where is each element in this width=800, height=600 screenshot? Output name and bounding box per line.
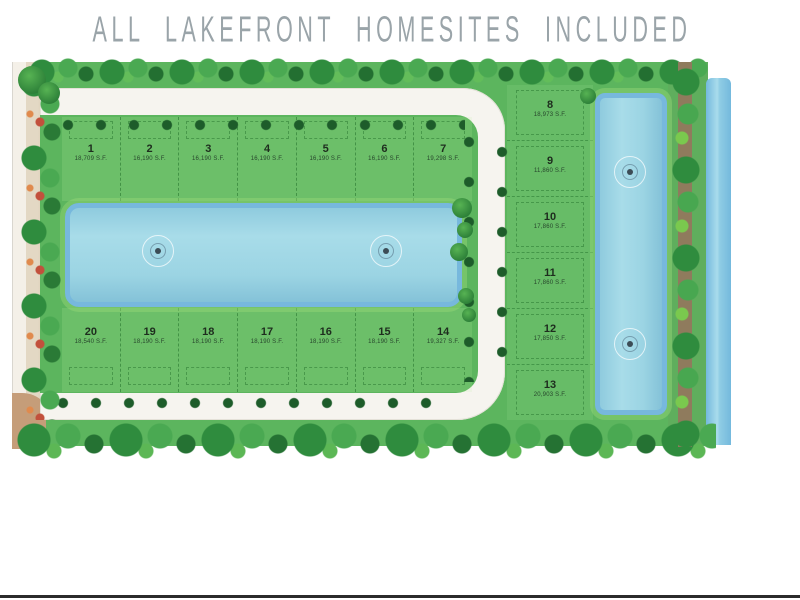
tree-icon bbox=[458, 288, 474, 304]
shrub-line-west bbox=[18, 70, 64, 420]
lot-parcel-13: 1320,903 S.F. bbox=[507, 364, 593, 420]
tree-icon bbox=[38, 82, 60, 104]
lot-parcel-18: 1818,190 S.F. bbox=[178, 308, 237, 392]
lot-area: 16,190 S.F. bbox=[309, 155, 342, 163]
street-tree-dots-east-outer bbox=[497, 142, 508, 380]
lot-area: 19,327 S.F. bbox=[427, 338, 460, 346]
lot-number: 17 bbox=[261, 326, 273, 338]
central-lake bbox=[65, 203, 462, 307]
fountain-icon bbox=[614, 328, 646, 360]
lot-number: 18 bbox=[202, 326, 214, 338]
lot-number: 3 bbox=[205, 143, 211, 155]
building-envelope-line bbox=[516, 90, 584, 135]
lot-area: 18,709 S.F. bbox=[75, 155, 108, 163]
lot-area: 16,190 S.F. bbox=[133, 155, 166, 163]
lot-parcel-19: 1918,190 S.F. bbox=[120, 308, 179, 392]
building-envelope-line bbox=[245, 367, 289, 385]
fountain-icon bbox=[142, 235, 174, 267]
fountain-icon bbox=[370, 235, 402, 267]
lot-parcel-12: 1217,850 S.F. bbox=[507, 308, 593, 364]
lot-parcel-15: 1518,190 S.F. bbox=[355, 308, 414, 392]
tree-icon bbox=[462, 308, 476, 322]
lot-area: 16,190 S.F. bbox=[192, 155, 225, 163]
lot-number: 1 bbox=[88, 143, 94, 155]
building-envelope-line bbox=[69, 367, 113, 385]
lot-area: 18,190 S.F. bbox=[368, 338, 401, 346]
lot-parcel-20: 2018,540 S.F. bbox=[62, 308, 120, 392]
building-envelope-line bbox=[186, 367, 230, 385]
lot-number: 14 bbox=[437, 326, 449, 338]
lot-number: 20 bbox=[85, 326, 97, 338]
street-tree-dots-north bbox=[60, 119, 465, 131]
lot-parcel-10: 1017,860 S.F. bbox=[507, 196, 593, 252]
tree-icon bbox=[457, 222, 473, 238]
page-title: ALL LAKEFRONT HOMESITES INCLUDED bbox=[39, 10, 745, 52]
lot-area: 16,190 S.F. bbox=[251, 155, 284, 163]
east-lake bbox=[595, 93, 667, 415]
lot-parcel-9: 911,860 S.F. bbox=[507, 140, 593, 196]
lot-area: 18,190 S.F. bbox=[309, 338, 342, 346]
lot-area: 18,540 S.F. bbox=[75, 338, 108, 346]
tree-icon bbox=[580, 88, 596, 104]
lot-number: 4 bbox=[264, 143, 270, 155]
lot-number: 19 bbox=[143, 326, 155, 338]
building-envelope-line bbox=[128, 367, 172, 385]
lot-number: 5 bbox=[323, 143, 329, 155]
lot-area: 18,190 S.F. bbox=[192, 338, 225, 346]
lot-number: 15 bbox=[378, 326, 390, 338]
lot-parcel-16: 1618,190 S.F. bbox=[296, 308, 355, 392]
street-tree-dots-south bbox=[55, 397, 443, 409]
lot-row-south: 2018,540 S.F. 1918,190 S.F. 1818,190 S.F… bbox=[62, 308, 472, 392]
lot-number: 7 bbox=[440, 143, 446, 155]
lot-parcel-11: 1117,860 S.F. bbox=[507, 252, 593, 308]
lot-number: 16 bbox=[320, 326, 332, 338]
lot-area: 19,298 S.F. bbox=[427, 155, 460, 163]
building-envelope-line bbox=[516, 146, 584, 191]
lot-area: 16,190 S.F. bbox=[368, 155, 401, 163]
tree-icon bbox=[450, 243, 468, 261]
lot-number: 2 bbox=[147, 143, 153, 155]
tree-line-east bbox=[666, 62, 708, 447]
lot-parcel-17: 1718,190 S.F. bbox=[237, 308, 296, 392]
image-bottom-border bbox=[0, 595, 800, 598]
tree-line-top bbox=[28, 56, 708, 90]
lot-column-east: 818,973 S.F. 911,860 S.F. 1017,860 S.F. … bbox=[507, 85, 593, 420]
building-envelope-line bbox=[516, 370, 584, 415]
lot-area: 18,190 S.F. bbox=[133, 338, 166, 346]
building-envelope-line bbox=[516, 258, 584, 303]
lot-number: 6 bbox=[381, 143, 387, 155]
lot-area: 18,190 S.F. bbox=[251, 338, 284, 346]
fountain-icon bbox=[614, 156, 646, 188]
tree-line-bottom bbox=[16, 418, 716, 472]
east-canal bbox=[706, 78, 731, 445]
building-envelope-line bbox=[516, 314, 584, 359]
building-envelope-line bbox=[421, 367, 465, 385]
building-envelope-line bbox=[363, 367, 407, 385]
tree-icon bbox=[452, 198, 472, 218]
building-envelope-line bbox=[516, 202, 584, 247]
building-envelope-line bbox=[304, 367, 348, 385]
